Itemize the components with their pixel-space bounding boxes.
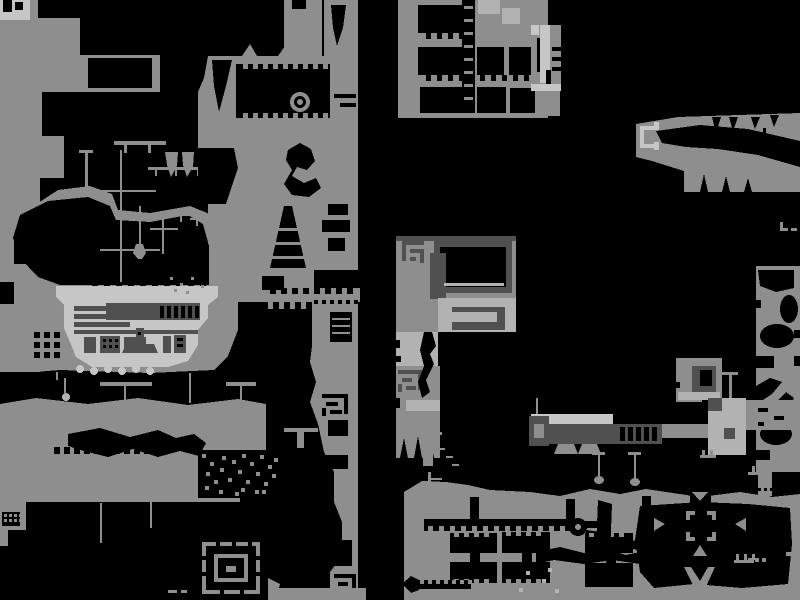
map-shape xyxy=(202,572,206,576)
ship-cabin xyxy=(106,303,200,320)
map-shape xyxy=(255,490,259,494)
map-shape xyxy=(461,526,466,531)
map-shape xyxy=(210,279,213,282)
map-shape xyxy=(162,214,164,254)
map-shape xyxy=(752,554,755,560)
map-shape xyxy=(338,582,348,586)
map-shape xyxy=(263,113,268,118)
map-shape xyxy=(736,554,739,560)
map-shape xyxy=(566,499,575,521)
map-shape xyxy=(44,332,50,338)
map-shape xyxy=(103,345,106,348)
map-shape xyxy=(118,58,123,63)
map-shape xyxy=(628,452,641,455)
map-shape xyxy=(256,472,260,476)
map-shape xyxy=(406,386,416,390)
map-shape xyxy=(54,332,60,338)
map-shape xyxy=(536,579,541,583)
map-shape xyxy=(464,6,473,9)
map-shape xyxy=(160,306,164,318)
map-shape xyxy=(228,478,232,482)
map-shape xyxy=(506,532,511,536)
map-shape xyxy=(303,288,309,294)
building-room xyxy=(510,88,535,113)
map-shape xyxy=(0,530,8,546)
map-shape xyxy=(85,152,88,190)
map-shape xyxy=(546,70,551,84)
map-shape xyxy=(293,64,298,69)
map-shape xyxy=(132,365,140,373)
map-shape xyxy=(314,300,318,304)
map-shape xyxy=(283,113,288,118)
map-shape xyxy=(268,302,273,309)
map-shape xyxy=(328,238,345,251)
map-shape xyxy=(188,306,192,318)
map-shape xyxy=(543,12,546,25)
map-shape xyxy=(314,288,320,294)
map-shape xyxy=(549,526,554,531)
map-shape xyxy=(548,88,560,116)
map-shape xyxy=(484,533,489,537)
map-shape xyxy=(552,57,561,61)
map-shape xyxy=(791,228,797,231)
map-shape xyxy=(542,579,546,583)
map-shape xyxy=(592,452,605,455)
map-shape xyxy=(273,113,278,118)
map-shape xyxy=(292,0,306,9)
map-shape xyxy=(332,332,350,334)
map-shape xyxy=(325,288,331,294)
map-shape xyxy=(402,245,406,261)
map-shape xyxy=(464,45,473,48)
map-shape xyxy=(201,285,204,288)
map-shape xyxy=(168,590,177,593)
map-shape xyxy=(598,454,600,476)
map-shape xyxy=(226,566,236,572)
map-shape xyxy=(410,249,424,253)
map-shape xyxy=(104,365,112,373)
map-shape xyxy=(756,300,761,308)
map-shape xyxy=(260,455,264,459)
map-shape xyxy=(100,503,102,543)
map-shape xyxy=(332,325,350,327)
map-shape xyxy=(146,367,154,375)
ring-chamber xyxy=(236,64,330,118)
map-shape xyxy=(686,537,695,541)
map-shape xyxy=(700,370,712,386)
map-shape xyxy=(513,75,518,81)
map-shape xyxy=(323,113,328,118)
map-shape xyxy=(536,398,538,416)
map-shape xyxy=(90,367,98,375)
hanging-lamp xyxy=(226,382,256,386)
map-shape xyxy=(3,0,12,12)
map-shape xyxy=(181,590,187,593)
map-shape xyxy=(644,427,649,441)
map-shape xyxy=(54,342,60,348)
map-shape xyxy=(104,282,110,286)
map-shape xyxy=(34,342,40,348)
map-shape xyxy=(188,282,194,286)
map-shape xyxy=(274,458,278,462)
map-shape xyxy=(0,282,14,304)
map-shape xyxy=(154,447,160,454)
map-shape xyxy=(474,533,479,537)
map-shape xyxy=(276,588,366,600)
building-room xyxy=(477,47,504,75)
map-shape xyxy=(472,526,477,531)
map-shape xyxy=(214,554,218,582)
map-shape xyxy=(484,579,489,583)
map-shape xyxy=(686,511,690,520)
map-shape xyxy=(502,75,507,81)
map-shape xyxy=(452,464,459,466)
map-shape xyxy=(180,283,183,286)
map-shape xyxy=(144,447,150,454)
map-shape xyxy=(502,8,520,24)
map-shape xyxy=(177,338,183,341)
map-shape xyxy=(163,336,171,353)
hanging-lamp xyxy=(100,382,152,386)
map-shape xyxy=(552,47,561,51)
map-shape xyxy=(494,526,499,531)
map-shape xyxy=(205,486,209,490)
map-shape xyxy=(256,542,260,594)
map-shape xyxy=(256,556,260,560)
map-shape xyxy=(283,64,288,69)
map-shape xyxy=(124,145,127,153)
map-shape xyxy=(150,500,152,528)
map-shape xyxy=(56,0,61,13)
map-shape xyxy=(420,580,424,584)
map-shape xyxy=(9,514,12,517)
map-shape xyxy=(202,542,206,594)
map-shape xyxy=(464,32,473,35)
map-shape xyxy=(636,427,641,441)
map-shape xyxy=(526,532,531,536)
map-shape xyxy=(100,190,156,192)
map-shape xyxy=(244,554,248,582)
map-shape xyxy=(470,497,479,521)
map-shape xyxy=(65,0,70,13)
map-shape xyxy=(702,128,705,140)
map-shape xyxy=(722,372,738,375)
map-shape xyxy=(202,556,206,560)
map-shape xyxy=(712,511,716,520)
map-shape xyxy=(115,345,118,348)
map-shape xyxy=(217,259,220,275)
map-shape xyxy=(506,579,511,583)
map-shape xyxy=(478,0,500,14)
map-shape xyxy=(336,288,342,294)
map-shape xyxy=(262,276,284,290)
map-shape xyxy=(140,282,146,286)
map-shape xyxy=(322,394,348,398)
map-shape xyxy=(240,590,244,594)
map-shape xyxy=(531,84,561,91)
map-shape xyxy=(414,432,442,435)
map-shape xyxy=(662,424,710,438)
map-shape xyxy=(274,242,304,245)
map-shape xyxy=(332,318,350,320)
map-shape xyxy=(322,300,326,304)
map-shape xyxy=(758,488,761,491)
map-shape xyxy=(174,289,177,292)
map-shape xyxy=(346,300,350,304)
map-shape xyxy=(139,206,141,244)
map-shape xyxy=(14,514,17,517)
map-shape xyxy=(76,365,84,373)
map-shape xyxy=(527,526,532,531)
map-shape xyxy=(109,345,112,348)
map-shape xyxy=(758,422,764,426)
map-shape xyxy=(195,306,199,318)
map-shape xyxy=(526,579,531,583)
map-shape xyxy=(516,526,521,531)
map-shape xyxy=(74,447,80,454)
map-shape xyxy=(34,332,40,338)
map-shape xyxy=(396,356,401,362)
map-shape xyxy=(794,356,800,366)
map-shape xyxy=(175,170,177,176)
map-shape xyxy=(707,537,716,541)
map-shape xyxy=(464,84,473,87)
map-shape xyxy=(276,228,302,231)
map-shape xyxy=(430,253,446,299)
map-shape xyxy=(216,542,220,546)
map-shape xyxy=(167,306,171,318)
map-shape xyxy=(268,465,272,469)
map-shape xyxy=(402,378,412,382)
map-shape xyxy=(220,468,224,472)
map-shape xyxy=(483,526,488,531)
map-shape xyxy=(538,526,543,531)
map-shape xyxy=(589,533,594,537)
map-shape xyxy=(634,454,636,478)
map-shape xyxy=(243,64,248,69)
map-shape xyxy=(84,337,96,353)
map-shape xyxy=(279,302,284,309)
map-shape xyxy=(191,277,194,280)
map-shape xyxy=(238,470,242,474)
map-shape xyxy=(263,64,268,69)
map-shape xyxy=(74,322,130,327)
maze-room xyxy=(585,563,633,587)
map-shape xyxy=(426,33,431,39)
map-shape xyxy=(505,526,510,531)
map-shape xyxy=(100,249,160,251)
map-shape xyxy=(107,58,112,63)
map-shape xyxy=(531,25,539,35)
map-shape xyxy=(406,411,440,422)
map-shape xyxy=(786,552,792,556)
map-shape xyxy=(64,378,66,394)
map-shape xyxy=(428,526,433,531)
map-shape xyxy=(79,150,93,153)
map-shape xyxy=(334,94,356,98)
map-shape xyxy=(174,306,178,318)
map-shape xyxy=(19,519,22,522)
map-shape xyxy=(396,398,400,408)
map-shape xyxy=(150,228,178,230)
map-shape xyxy=(54,447,60,454)
map-shape xyxy=(222,456,226,460)
map-shape xyxy=(334,540,352,566)
map-shape xyxy=(470,553,480,562)
map-shape xyxy=(64,447,70,454)
map-shape xyxy=(214,578,248,582)
map-shape xyxy=(177,344,183,347)
map-shape xyxy=(129,58,134,63)
map-shape xyxy=(313,113,318,118)
map-shape xyxy=(152,282,158,286)
map-shape xyxy=(428,472,431,482)
map-shape xyxy=(19,514,22,517)
map-shape xyxy=(34,352,40,358)
map-shape xyxy=(114,141,166,145)
map-shape xyxy=(438,448,445,450)
map-shape xyxy=(554,444,578,454)
map-shape xyxy=(522,553,532,562)
map-shape xyxy=(480,75,485,81)
map-shape xyxy=(290,302,295,309)
map-shape xyxy=(281,288,287,294)
map-shape xyxy=(246,480,250,484)
map-shape xyxy=(328,204,348,215)
map-shape xyxy=(224,259,227,275)
map-shape xyxy=(575,524,581,530)
map-shape xyxy=(330,410,342,414)
map-shape xyxy=(446,456,453,458)
map-shape xyxy=(273,64,278,69)
map-shape xyxy=(248,542,252,546)
map-shape xyxy=(62,393,70,401)
building-room xyxy=(477,87,506,113)
building-room xyxy=(418,5,462,33)
map-shape xyxy=(138,332,141,335)
map-shape xyxy=(96,58,101,63)
map-shape xyxy=(491,75,496,81)
map-shape xyxy=(202,590,260,594)
map-shape xyxy=(240,386,242,404)
world-map-canvas[interactable] xyxy=(0,0,800,600)
map-shape xyxy=(676,382,680,388)
map-shape xyxy=(330,300,334,304)
map-shape xyxy=(756,450,770,460)
map-shape xyxy=(724,428,735,439)
map-shape xyxy=(396,340,400,348)
map-shape xyxy=(436,580,440,584)
map-shape xyxy=(74,306,106,311)
map-shape xyxy=(100,336,120,353)
totem xyxy=(406,400,440,411)
map-shape xyxy=(410,257,416,261)
map-shape xyxy=(628,427,633,441)
map-shape xyxy=(297,432,304,448)
map-shape xyxy=(220,590,224,594)
map-shape xyxy=(164,447,170,454)
map-shape xyxy=(430,478,442,480)
map-shape xyxy=(313,64,318,69)
map-shape xyxy=(250,462,254,466)
map-shape xyxy=(744,554,747,560)
greek-key xyxy=(398,370,422,374)
map-shape xyxy=(734,560,754,563)
map-shape xyxy=(214,480,218,484)
map-shape xyxy=(235,492,239,496)
map-shape xyxy=(448,75,453,81)
map-shape xyxy=(459,75,464,81)
map-shape xyxy=(748,472,762,475)
greek-key xyxy=(402,241,424,245)
map-shape xyxy=(232,460,236,464)
map-shape xyxy=(437,75,442,81)
map-shape xyxy=(242,454,246,458)
map-shape xyxy=(444,580,448,584)
map-shape xyxy=(122,344,158,353)
map-shape xyxy=(44,342,50,348)
map-shape xyxy=(74,0,79,13)
map-shape xyxy=(44,352,50,358)
map-shape xyxy=(4,519,7,522)
map-shape xyxy=(538,424,662,444)
map-shape xyxy=(140,58,145,63)
map-shape xyxy=(702,450,705,455)
map-shape xyxy=(756,356,774,368)
map-shape xyxy=(103,339,106,342)
map-shape xyxy=(297,99,303,105)
map-shape xyxy=(758,408,768,412)
map-shape xyxy=(710,450,713,455)
map-shape xyxy=(253,113,258,118)
map-shape xyxy=(262,490,266,494)
map-shape xyxy=(344,398,348,414)
map-shape xyxy=(460,580,464,584)
map-shape xyxy=(474,579,479,583)
map-shape xyxy=(115,339,118,342)
map-shape xyxy=(762,558,766,562)
map-shape xyxy=(774,416,784,420)
map-shape xyxy=(420,253,424,263)
map-shape xyxy=(780,295,798,323)
map-shape xyxy=(444,283,504,286)
map-shape xyxy=(241,488,245,492)
map-shape xyxy=(459,33,464,39)
map-shape xyxy=(293,113,298,118)
map-shape xyxy=(340,103,356,107)
map-shape xyxy=(92,282,98,286)
map-shape xyxy=(189,373,191,403)
map-shape xyxy=(334,574,356,578)
map-shape xyxy=(15,2,23,10)
map-shape xyxy=(210,462,214,466)
map-shape xyxy=(428,580,432,584)
map-shape xyxy=(322,220,350,232)
map-shape xyxy=(326,402,338,406)
map-shape xyxy=(516,532,521,536)
map-shape xyxy=(516,579,521,583)
map-shape xyxy=(763,128,766,140)
map-shape xyxy=(303,64,308,69)
map-shape xyxy=(164,282,170,286)
map-shape xyxy=(780,222,783,230)
map-shape xyxy=(398,384,402,392)
building-room xyxy=(420,87,463,113)
map-shape xyxy=(439,526,444,531)
map-shape xyxy=(464,19,473,22)
map-shape xyxy=(620,427,625,441)
map-shape xyxy=(186,291,189,294)
